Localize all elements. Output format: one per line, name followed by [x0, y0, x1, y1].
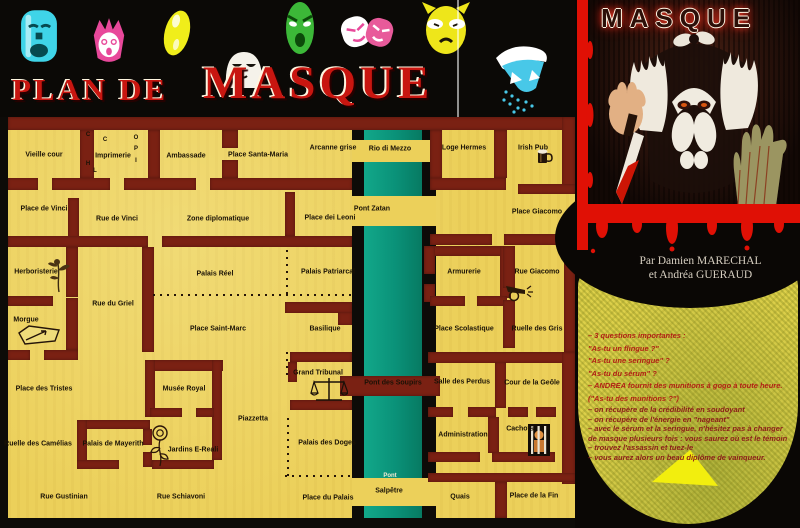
map-label: Ruelle des Gris [512, 326, 563, 333]
map-wall [77, 420, 150, 429]
map-wall [150, 408, 182, 417]
dotted-path [153, 294, 352, 296]
map-wall [495, 482, 507, 518]
right-column: Par Damien MARECHAL et Andréa GUERAUD MA… [575, 0, 800, 528]
map-wall [338, 312, 352, 325]
map-wall [494, 130, 507, 178]
authors-credit: Par Damien MARECHAL et Andréa GUERAUD [575, 254, 800, 282]
map-label: Place Scolastique [434, 326, 494, 333]
map-wall [503, 300, 515, 348]
map-label: Palais Patriarcal [301, 269, 355, 276]
author-line-2: et Andréa GUERAUD [601, 268, 800, 282]
map-label: Place Giacomo [512, 209, 562, 216]
grand-canal [352, 121, 436, 520]
mask-duo-pink-icon [338, 10, 396, 54]
mask-sad-cyan-icon [16, 8, 62, 64]
map-wall [142, 247, 154, 352]
hint-line: – ANDREA fournit des munitions à gogo à … [588, 380, 794, 393]
map-wall [518, 184, 575, 194]
map-wall [430, 296, 465, 306]
map-label: Cachots [506, 426, 534, 433]
map-wall [8, 296, 53, 306]
hint-line: "As-tu un flingue ?" [588, 343, 794, 356]
mask-crown-pink-icon [90, 16, 128, 64]
map-label: Place dei Leoni [305, 215, 356, 222]
map-label: Basilique [309, 326, 340, 333]
hint-list: – 3 questions importantes :"As-tu un fli… [588, 330, 794, 462]
map-label: Zone diplomatique [187, 216, 249, 223]
map-label: Rue du Griel [92, 301, 134, 308]
map-label: C [103, 137, 107, 143]
cannon-icon [503, 280, 537, 302]
map-wall [536, 407, 556, 417]
map-label: Palais de Mayerith [82, 441, 143, 448]
map-wall [8, 236, 148, 247]
map-label: Palais des Doges [298, 440, 356, 447]
map-label: Irish Pub [518, 145, 548, 152]
map-label: Place de Vinci [21, 206, 68, 213]
map-wall [428, 452, 480, 462]
map-label: I [135, 158, 137, 164]
map-label: Pont [383, 473, 396, 479]
blood-drips-left [585, 30, 597, 210]
map-label: Place des Tristes [16, 386, 73, 393]
map-label: Piazzetta [238, 416, 268, 423]
map-wall [428, 407, 453, 417]
map-wall [468, 407, 496, 417]
page-title-masque: MASQUE [203, 56, 433, 110]
map-wall [508, 407, 528, 417]
map-wall [430, 130, 442, 178]
map-label: Administration [438, 432, 487, 439]
map-border [0, 115, 8, 528]
hint-line: – trouvez l'assassin et tuez-le [588, 443, 794, 453]
map-wall [562, 117, 575, 190]
map-label: C [86, 132, 90, 138]
map-label: Salpêtre [375, 488, 403, 495]
map-label: H [86, 161, 90, 167]
map-wall [8, 178, 38, 190]
map-label: Cour de la Geôle [504, 380, 560, 387]
map-wall [8, 117, 575, 130]
page-header: PLAN DE MASQUE [0, 0, 576, 117]
map-label: Vieille cour [25, 152, 62, 159]
map-wall [488, 417, 499, 453]
map-border [0, 518, 576, 528]
map-wall [44, 350, 78, 360]
map-label: Armurerie [447, 269, 480, 276]
game-cover: MASQUE [577, 0, 800, 255]
map-label: Pont des Soupirs [364, 380, 422, 387]
masked-figure-illustration [588, 20, 800, 206]
dotted-path [286, 250, 288, 296]
canal-segment [364, 396, 422, 478]
map-label: Rue Gustinian [40, 494, 87, 501]
page-title-plan-de: PLAN DE [12, 72, 168, 108]
author-line-1: Par Damien MARECHAL [601, 254, 800, 268]
mask-oval-yellow-icon [158, 6, 196, 60]
dotted-path [286, 352, 288, 378]
map-wall [430, 234, 492, 245]
map-label: P [134, 146, 138, 152]
map-label: Palais Réel [197, 271, 234, 278]
map-wall [210, 178, 352, 190]
map-label: Place de la Fin [510, 493, 559, 500]
dotted-path [285, 475, 352, 477]
map-label: Arcanne grise [310, 145, 357, 152]
hint-line: – on récupère de la crédibilité en soudo… [588, 405, 794, 415]
cover-artwork: MASQUE [588, 0, 800, 206]
map-wall [285, 192, 295, 236]
map-label: Ruelle des Camélias [4, 441, 72, 448]
map-label: Rio di Mezzo [369, 146, 411, 153]
map-label: Morgue [13, 317, 38, 324]
map-label: O [134, 135, 139, 141]
map-wall [124, 178, 196, 190]
hint-line: – 3 questions importantes : [588, 330, 794, 343]
map-wall [222, 130, 238, 148]
map-label: Place Santa-Maria [228, 152, 288, 159]
blood-drips-bottom [577, 218, 800, 254]
map-label: Grand Tribunal [293, 370, 343, 377]
map-wall [66, 298, 78, 350]
map-wall [290, 352, 352, 362]
map-label: L [93, 168, 97, 174]
map-label: Jardins E-Reali [168, 447, 219, 454]
map-wall [77, 460, 119, 469]
map-label: Rue de Vinci [96, 216, 138, 223]
hint-line: – avec le sérum et la seringue, n'hésite… [588, 424, 794, 434]
map-label: Pont Zatan [354, 206, 390, 213]
map-wall [428, 473, 575, 482]
map-label: Imprimerie [95, 153, 131, 160]
map-wall [430, 246, 508, 256]
canal-segment [364, 226, 422, 376]
map-wall [162, 236, 352, 247]
map-label: Rue Schiavoni [157, 494, 205, 501]
mask-cat-yellow-icon [420, 0, 472, 58]
map-wall [8, 350, 30, 360]
map-wall [196, 408, 214, 417]
mask-green-icon [282, 0, 318, 56]
map-label: Loge Hermes [442, 145, 486, 152]
map-wall [148, 130, 160, 178]
scales-of-justice-icon [310, 376, 348, 404]
map-wall [68, 198, 79, 238]
page-fold-crease [457, 0, 459, 117]
hint-line: – on récupère de l'énergie en "nageant" [588, 415, 794, 425]
map-label: Place du Palais [303, 495, 354, 502]
hint-line: "As-tu une seringue" ? [588, 355, 794, 368]
map-wall [52, 178, 110, 190]
hint-line: ("As-tu des munitions ?") [588, 393, 794, 406]
map-wall [222, 160, 238, 178]
map-label: Rue Giacomo [514, 269, 559, 276]
hint-line: "As-tu du sérum" ? [588, 368, 794, 381]
dotted-path [287, 418, 289, 478]
map-wall [562, 352, 575, 484]
map-label: Place Saint-Marc [190, 326, 246, 333]
map-wall [424, 246, 435, 274]
mask-jester-cyan-icon [492, 40, 552, 116]
magazine-page: Vieille courImprimerieAmbassadePlace San… [0, 0, 800, 528]
coffin-icon [16, 324, 62, 346]
map-label: Ambassade [166, 153, 205, 160]
map-label: Salle des Perdus [434, 379, 490, 386]
hint-line: de masque plusieurs fois : vous saurez o… [588, 434, 794, 444]
map-label: Quais [450, 494, 469, 501]
map-label: Musée Royal [163, 386, 206, 393]
canal-segment [364, 162, 422, 196]
map-wall [430, 178, 506, 190]
map-label: Herboristerie [14, 269, 58, 276]
hint-line: – vous aurez alors un beau diplôme de va… [588, 453, 794, 463]
